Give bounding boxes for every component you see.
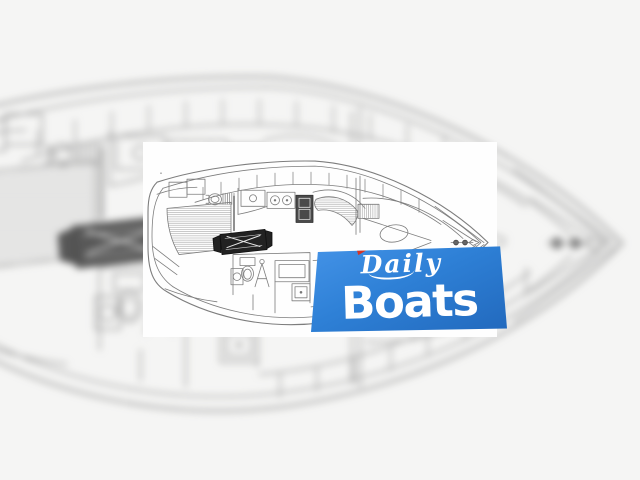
watermarked-listing-image: Daily Boats bbox=[0, 0, 640, 480]
logo-script-row: Daily bbox=[360, 250, 442, 282]
dailyboats-watermark-logo: Daily Boats bbox=[311, 246, 507, 332]
logo-daily-text: Daily bbox=[360, 250, 442, 278]
logo-boats-text: Boats bbox=[341, 281, 478, 323]
